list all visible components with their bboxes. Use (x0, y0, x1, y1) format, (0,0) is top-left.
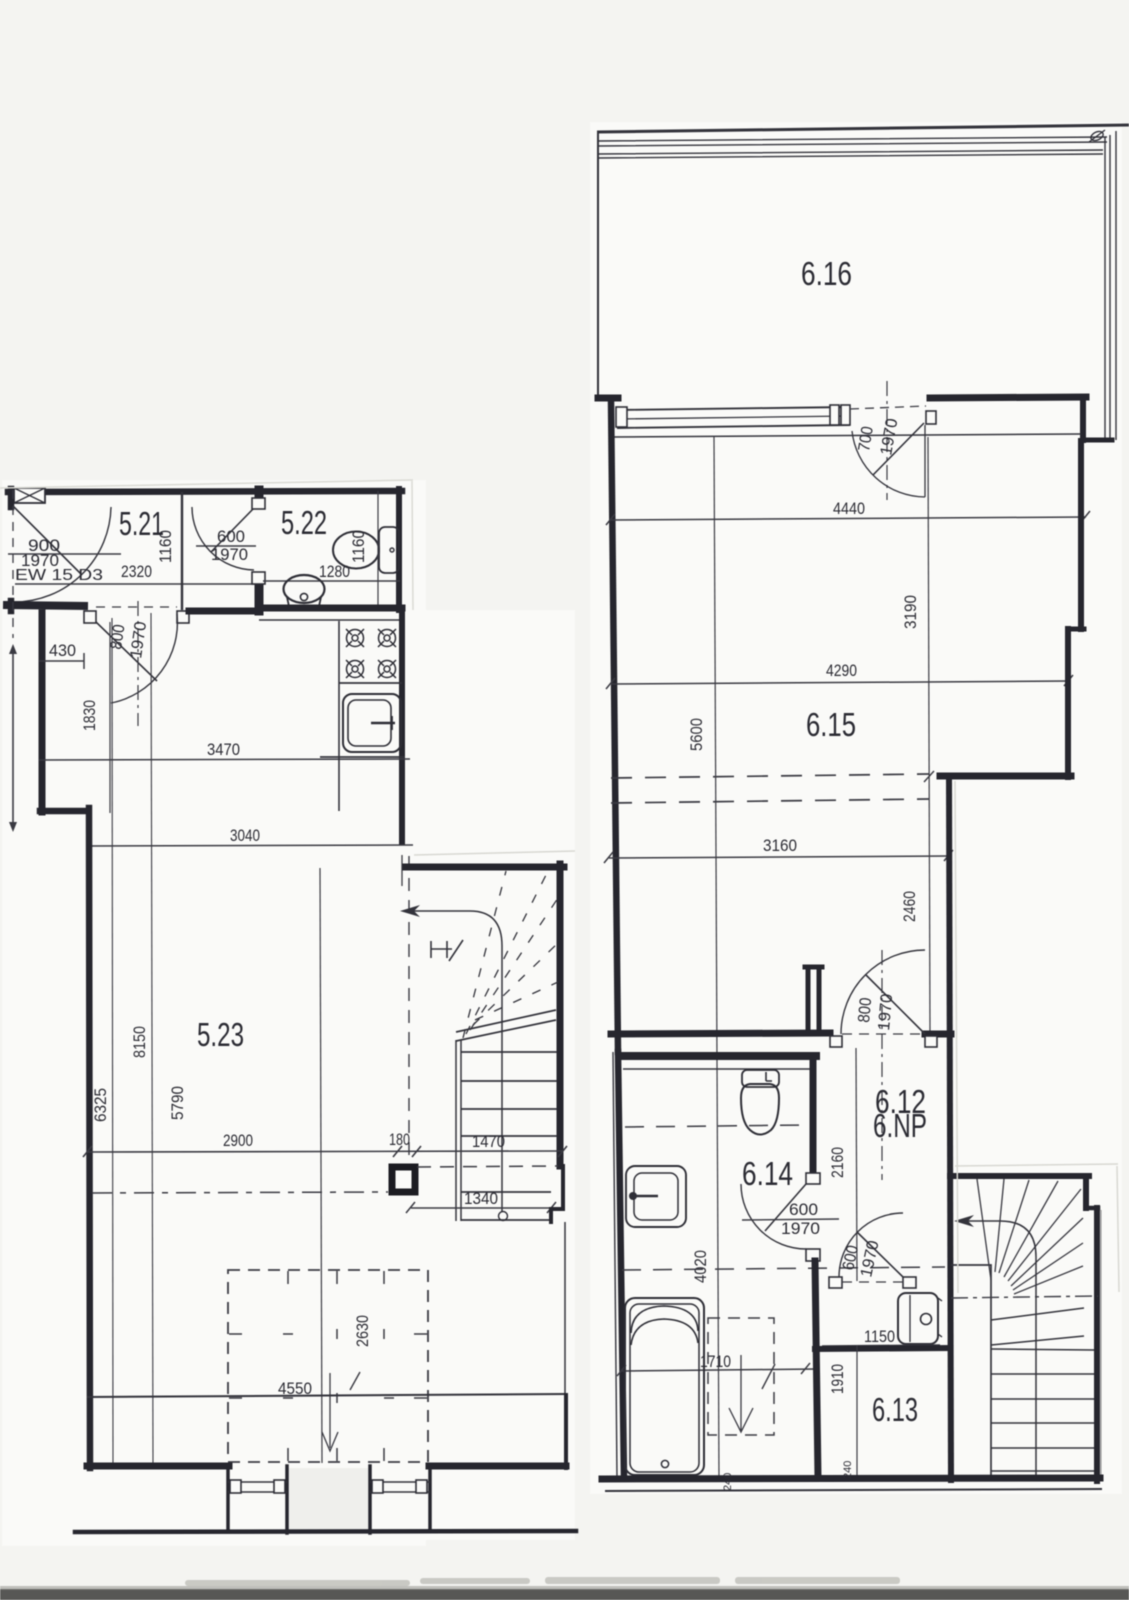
svg-text:3190: 3190 (902, 595, 920, 629)
svg-text:3470: 3470 (207, 741, 240, 759)
svg-text:5.22: 5.22 (281, 504, 327, 541)
svg-text:2320: 2320 (121, 563, 152, 581)
svg-text:6.15: 6.15 (806, 706, 856, 743)
svg-text:5790: 5790 (169, 1086, 187, 1120)
svg-text:1340: 1340 (464, 1190, 498, 1208)
svg-text:1160: 1160 (157, 530, 175, 563)
svg-text:6.16: 6.16 (801, 255, 852, 292)
svg-text:800: 800 (855, 997, 875, 1023)
svg-text:2460: 2460 (901, 891, 919, 922)
svg-text:1280: 1280 (319, 563, 350, 581)
svg-text:1150: 1150 (864, 1328, 895, 1346)
svg-text:430: 430 (49, 642, 76, 660)
svg-text:4020: 4020 (692, 1250, 710, 1283)
svg-text:1910: 1910 (829, 1364, 847, 1394)
svg-text:8150: 8150 (131, 1026, 149, 1058)
svg-text:180: 180 (389, 1131, 410, 1149)
svg-text:240: 240 (722, 1473, 734, 1491)
svg-text:EW 15 D3: EW 15 D3 (15, 567, 103, 584)
svg-text:2160: 2160 (829, 1147, 847, 1178)
svg-text:4440: 4440 (833, 500, 865, 518)
svg-text:2900: 2900 (223, 1132, 253, 1150)
svg-text:240: 240 (842, 1461, 854, 1479)
svg-text:600: 600 (789, 1201, 818, 1219)
svg-text:5600: 5600 (688, 718, 706, 751)
svg-text:1830: 1830 (81, 700, 99, 731)
svg-text:6.NP: 6.NP (873, 1107, 927, 1144)
svg-text:1970: 1970 (781, 1220, 820, 1238)
svg-text:1470: 1470 (472, 1133, 505, 1151)
svg-text:1970: 1970 (211, 546, 248, 564)
svg-text:1970: 1970 (875, 993, 896, 1031)
svg-text:6325: 6325 (92, 1088, 110, 1122)
svg-text:1160: 1160 (350, 530, 368, 563)
svg-text:6.13: 6.13 (872, 1391, 918, 1428)
svg-text:5.23: 5.23 (197, 1016, 244, 1053)
svg-text:4290: 4290 (826, 662, 857, 680)
svg-text:3160: 3160 (763, 837, 797, 855)
svg-text:3040: 3040 (230, 827, 260, 845)
svg-text:2630: 2630 (354, 1315, 372, 1347)
svg-text:6.14: 6.14 (742, 1155, 793, 1192)
